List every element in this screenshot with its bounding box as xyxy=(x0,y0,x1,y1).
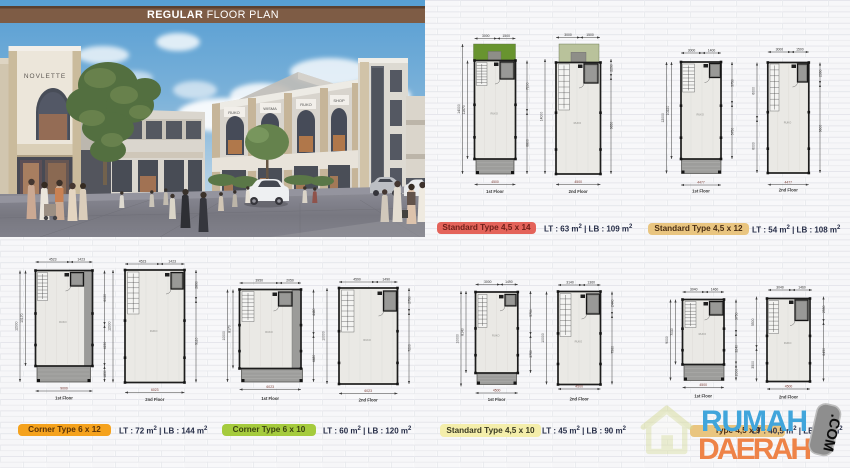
svg-text:3750: 3750 xyxy=(734,312,738,320)
svg-text:7560: 7560 xyxy=(610,346,614,354)
svg-text:10220: 10220 xyxy=(666,106,670,116)
svg-text:2nd Floor: 2nd Floor xyxy=(359,398,378,403)
svg-text:3000: 3000 xyxy=(776,47,784,51)
svg-text:RUKO: RUKO xyxy=(265,330,273,334)
svg-text:4500: 4500 xyxy=(491,180,499,184)
svg-text:12000: 12000 xyxy=(15,321,19,331)
svg-text:2nd Floor: 2nd Floor xyxy=(570,397,589,402)
svg-text:5750: 5750 xyxy=(529,309,533,317)
svg-text:4590: 4590 xyxy=(353,277,361,281)
svg-text:1490: 1490 xyxy=(505,280,513,284)
svg-text:9000: 9000 xyxy=(665,336,669,344)
svg-text:1st Floor: 1st Floor xyxy=(261,396,279,401)
svg-text:9600: 9600 xyxy=(818,125,822,133)
svg-text:12000: 12000 xyxy=(108,321,112,331)
svg-text:1500: 1500 xyxy=(586,33,594,37)
svg-text:2050: 2050 xyxy=(286,278,294,282)
svg-text:1423: 1423 xyxy=(168,259,176,263)
svg-text:2550: 2550 xyxy=(822,305,826,313)
svg-text:9000: 9000 xyxy=(60,387,68,391)
svg-text:6450: 6450 xyxy=(822,348,826,356)
svg-text:2nd Floor: 2nd Floor xyxy=(569,189,588,194)
svg-text:1460: 1460 xyxy=(798,285,806,289)
svg-text:RUKO: RUKO xyxy=(492,334,500,338)
svg-text:5500: 5500 xyxy=(751,318,755,326)
svg-text:1st Floor: 1st Floor xyxy=(692,189,710,194)
svg-text:1423: 1423 xyxy=(77,257,85,261)
svg-text:4480: 4480 xyxy=(312,308,316,316)
svg-text:7030: 7030 xyxy=(670,328,674,336)
svg-text:RUKO: RUKO xyxy=(575,340,583,344)
svg-text:4150: 4150 xyxy=(103,342,107,350)
svg-text:4523: 4523 xyxy=(139,259,147,263)
svg-text:1830: 1830 xyxy=(103,370,107,378)
svg-text:2nd Floor: 2nd Floor xyxy=(145,397,164,402)
svg-text:1500: 1500 xyxy=(796,47,804,51)
svg-text:3140: 3140 xyxy=(566,280,574,284)
svg-text:8170: 8170 xyxy=(228,325,232,333)
svg-text:2790: 2790 xyxy=(407,296,411,304)
svg-text:2390: 2390 xyxy=(818,69,822,77)
svg-text:4500: 4500 xyxy=(575,385,583,389)
svg-text:2290: 2290 xyxy=(609,64,613,72)
svg-text:3750: 3750 xyxy=(529,350,533,358)
svg-text:4500: 4500 xyxy=(785,385,793,389)
svg-text:1490: 1490 xyxy=(382,277,390,281)
svg-text:RUKO: RUKO xyxy=(784,120,792,124)
svg-text:7200: 7200 xyxy=(407,344,411,352)
svg-text:10000: 10000 xyxy=(322,331,326,341)
svg-text:1st Floor: 1st Floor xyxy=(55,396,73,401)
svg-text:3950: 3950 xyxy=(255,278,263,282)
svg-text:4500: 4500 xyxy=(699,383,707,387)
svg-text:2440: 2440 xyxy=(610,299,614,307)
svg-text:2nd Floor: 2nd Floor xyxy=(779,188,798,193)
svg-text:6800: 6800 xyxy=(525,139,529,147)
svg-text:4477: 4477 xyxy=(785,180,793,184)
svg-text:5750: 5750 xyxy=(730,79,734,87)
svg-text:9650: 9650 xyxy=(609,122,613,130)
svg-text:DAERAH: DAERAH xyxy=(698,433,812,465)
svg-text:6000: 6000 xyxy=(752,142,756,150)
svg-text:2890: 2890 xyxy=(194,281,198,289)
svg-text:1400: 1400 xyxy=(708,48,716,52)
svg-text:6023: 6023 xyxy=(151,388,159,392)
svg-text:RUKO: RUKO xyxy=(150,329,158,333)
svg-text:RUKO: RUKO xyxy=(59,320,67,324)
svg-text:10170: 10170 xyxy=(20,313,24,323)
svg-text:3000: 3000 xyxy=(484,280,492,284)
svg-text:3500: 3500 xyxy=(751,361,755,369)
svg-text:3000: 3000 xyxy=(688,48,696,52)
svg-text:9110: 9110 xyxy=(194,337,198,344)
svg-text:6020: 6020 xyxy=(103,294,107,302)
svg-text:14000: 14000 xyxy=(540,112,544,122)
svg-text:3240: 3240 xyxy=(734,345,738,353)
svg-text:6000: 6000 xyxy=(752,87,756,95)
svg-text:5750: 5750 xyxy=(730,128,734,136)
svg-text:RUKO: RUKO xyxy=(363,338,371,342)
svg-text:RUKO: RUKO xyxy=(574,121,582,125)
svg-text:10000: 10000 xyxy=(456,334,460,344)
svg-text:RUKO: RUKO xyxy=(784,341,792,345)
svg-text:1460: 1460 xyxy=(711,287,719,291)
svg-text:RUKO: RUKO xyxy=(699,332,707,336)
svg-text:14000: 14000 xyxy=(457,104,461,114)
svg-text:4480: 4480 xyxy=(312,355,316,363)
svg-text:11670: 11670 xyxy=(462,105,466,114)
svg-text:2000: 2000 xyxy=(734,369,738,377)
svg-text:4500: 4500 xyxy=(574,180,582,184)
svg-text:1500: 1500 xyxy=(502,34,510,38)
svg-text:1360: 1360 xyxy=(587,280,595,284)
svg-text:3000: 3000 xyxy=(482,34,490,38)
svg-text:3040: 3040 xyxy=(776,285,784,289)
svg-text:7200: 7200 xyxy=(525,82,529,90)
svg-text:6023: 6023 xyxy=(266,385,274,389)
svg-text:8140: 8140 xyxy=(461,328,465,336)
svg-text:6023: 6023 xyxy=(364,389,372,393)
svg-text:RUKO: RUKO xyxy=(490,112,498,116)
svg-text:4523: 4523 xyxy=(49,257,57,261)
svg-text:4477: 4477 xyxy=(697,181,705,185)
svg-text:10000: 10000 xyxy=(222,331,226,341)
svg-text:4500: 4500 xyxy=(493,389,501,393)
svg-text:10000: 10000 xyxy=(541,333,545,343)
svg-text:12000: 12000 xyxy=(661,113,665,123)
svg-text:1st Floor: 1st Floor xyxy=(486,189,504,194)
svg-text:3040: 3040 xyxy=(690,287,698,291)
svg-text:3000: 3000 xyxy=(564,33,572,37)
svg-text:RUKO: RUKO xyxy=(696,112,704,116)
svg-text:1st Floor: 1st Floor xyxy=(488,397,506,402)
